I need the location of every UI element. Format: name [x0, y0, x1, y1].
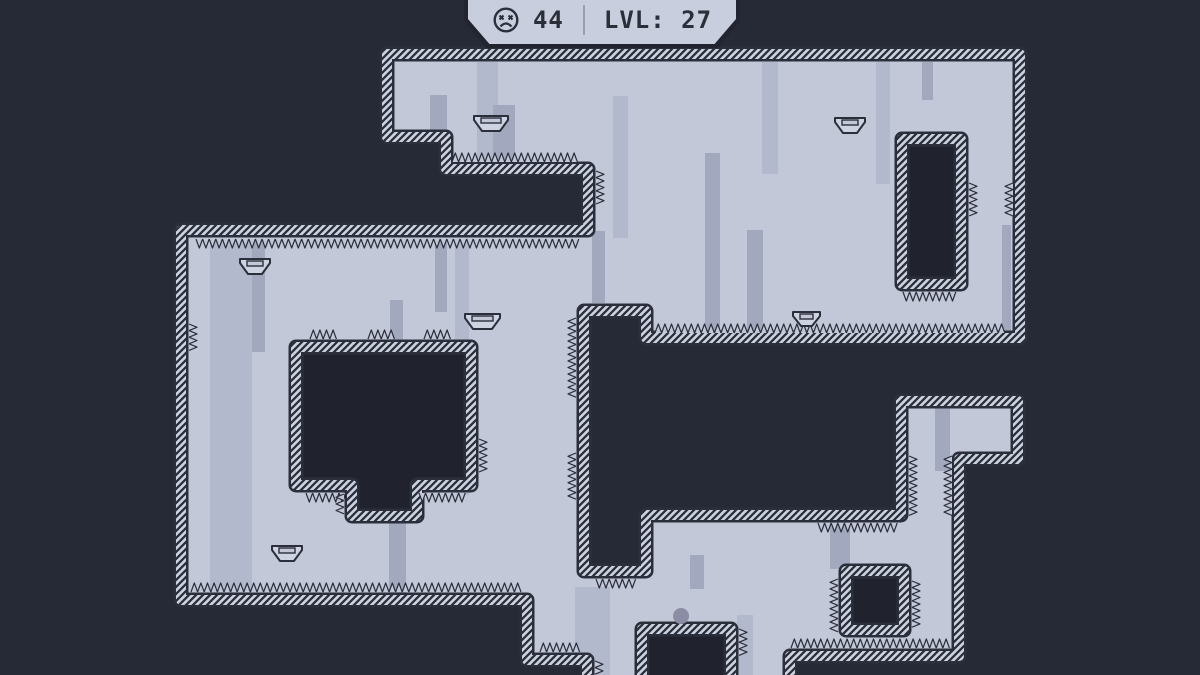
ledge-slot	[842, 120, 858, 125]
hole-bottom	[642, 629, 731, 675]
game-screen: 44 LVL: 27	[0, 0, 1200, 675]
spike-strip	[944, 456, 952, 515]
background-pillar	[705, 153, 720, 333]
ledge-slot	[279, 548, 295, 553]
hole-left	[296, 347, 471, 516]
background-pillar	[690, 555, 704, 589]
hud-panel: 44 LVL: 27	[464, 0, 740, 48]
background-pillar	[210, 240, 252, 598]
dead-face-icon	[492, 6, 520, 34]
level-indicator: LVL: 27	[604, 6, 712, 34]
ledge-slot	[481, 118, 501, 123]
death-count: 44	[533, 6, 564, 34]
background-pillar	[762, 62, 778, 174]
background-pillar	[922, 62, 933, 100]
background-pillar	[435, 240, 447, 312]
background-pillar	[747, 230, 763, 335]
background-pillar	[1002, 225, 1011, 335]
hud-panel-inner: 44 LVL: 27	[468, 0, 736, 44]
player-ball[interactable]	[673, 608, 689, 624]
background-pillar	[252, 240, 265, 352]
background-pillar	[613, 96, 628, 238]
hole-top-right	[902, 139, 961, 284]
background-pillar	[876, 62, 890, 184]
background-pillar	[592, 231, 605, 303]
hole-square-right	[846, 571, 904, 630]
spike-strip	[336, 494, 344, 514]
background-pillar	[935, 408, 950, 471]
hud-divider	[583, 5, 585, 35]
ledge-slot	[800, 314, 813, 319]
ledge-slot	[472, 316, 493, 321]
level-canvas[interactable]	[0, 0, 1200, 675]
ledge-slot	[247, 261, 263, 266]
spike-strip	[909, 456, 917, 515]
